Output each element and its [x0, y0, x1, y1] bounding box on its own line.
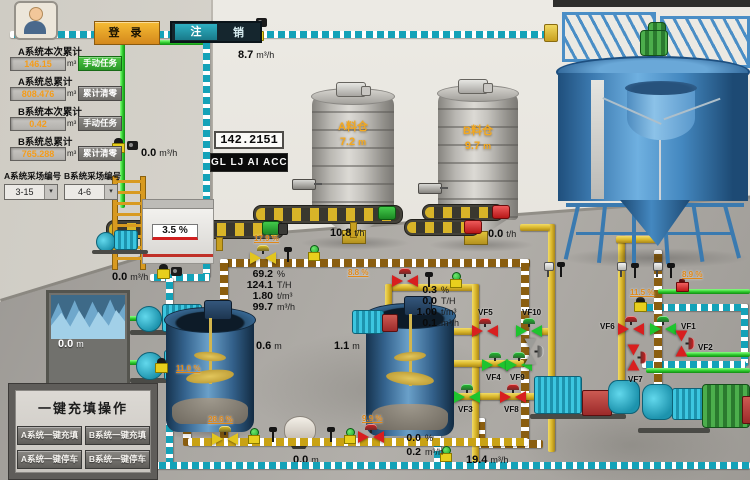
- dosing-pump-icon[interactable]: [96, 232, 116, 252]
- fill-control-valve[interactable]: [212, 426, 238, 445]
- transfer-pump-motor-icon: [352, 310, 384, 334]
- instrument-icon[interactable]: [630, 263, 640, 278]
- feed-valve-opening: 17.9 %: [254, 234, 279, 243]
- density-sensor-icon[interactable]: [248, 428, 260, 444]
- transmitter-icon: [171, 267, 182, 276]
- valve-vf5-label: VF5: [478, 308, 493, 317]
- valve-vf7[interactable]: [628, 345, 647, 371]
- valve-vf6-label: VF6: [600, 322, 615, 331]
- b-system-stop-button[interactable]: B系统一键停车: [85, 450, 150, 469]
- instrument-icon[interactable]: [666, 263, 676, 278]
- valve-position-sensor-icon[interactable]: [634, 297, 647, 312]
- conveyor-b-rate: 0.0t/h: [488, 224, 516, 242]
- teal-line-opening: 11.0 %: [176, 364, 200, 373]
- accum-label-b-total: B系统总累计: [18, 134, 72, 148]
- b-system-fill-button[interactable]: B系统一键充填: [85, 426, 150, 445]
- tank2-valve-opening: 9.9 %: [362, 414, 382, 423]
- mid-valve-opening: 8.8 %: [348, 268, 368, 277]
- underflow-pump-2-motor-icon: [672, 388, 704, 420]
- density-sensor-icon[interactable]: [308, 245, 320, 261]
- scada-filling-station-screen: A料仓 7.2 m B料仓 9.7 m 3.5 % 0.0m: [0, 0, 750, 480]
- conveyor-a1-motor-icon: [378, 206, 396, 220]
- instrument-icon[interactable]: [652, 262, 662, 277]
- valve-aux[interactable]: [525, 339, 544, 365]
- pipe-green-right-3: [646, 368, 750, 373]
- conveyor-leg: [216, 237, 223, 251]
- pump-coupling: [742, 396, 750, 424]
- silo-a-level-sensor-icon[interactable]: [292, 179, 316, 190]
- silo-b: [438, 92, 518, 220]
- valve-vf8-label: VF8: [504, 405, 519, 414]
- silo-a: [312, 95, 394, 219]
- bottom-flow-reading: 19.4m³/h: [466, 450, 508, 468]
- conveyor-b2-motor-icon: [464, 220, 482, 234]
- rake-shaft: [659, 140, 661, 202]
- site-a-label: A系统采场编号: [4, 170, 61, 182]
- slurry-a-readings: 69.2% 124.1T/H 1.80t/m³ 99.7m³/h: [238, 268, 295, 312]
- manual-task-a-button[interactable]: 手动任务: [78, 56, 122, 71]
- valve-vf2[interactable]: [676, 331, 695, 357]
- pipe-teal-top: [10, 31, 548, 38]
- accum-label-a-total: A系统总累计: [18, 74, 72, 88]
- instrument-icon[interactable]: [556, 262, 566, 277]
- logout-button[interactable]: 注 销: [170, 21, 262, 43]
- conveyor-b1-motor-icon: [492, 205, 510, 219]
- mixing-tank-1-agitator-motor-icon: [204, 300, 232, 320]
- valve-vf6[interactable]: [618, 316, 644, 335]
- instrument-icon[interactable]: [616, 262, 626, 277]
- underflow-pump-1-icon[interactable]: [608, 380, 640, 414]
- accum-value-b-total[interactable]: 765.288: [10, 147, 66, 161]
- pipe-green-right-2: [686, 352, 750, 357]
- pressure-instrument-icon[interactable]: [268, 427, 278, 442]
- valve-vf10[interactable]: [516, 318, 542, 337]
- pipe-green-right-1: [658, 289, 750, 294]
- pump-skid: [92, 250, 148, 254]
- avatar: [14, 1, 58, 40]
- site-a-select[interactable]: 3-15▾: [4, 184, 58, 200]
- chevron-down-icon: ▾: [104, 185, 117, 199]
- conveyor-a-rate: 10.8t/h: [330, 223, 364, 241]
- accum-label-a-current: A系统本次累计: [18, 44, 82, 58]
- silo-b-level-sensor-icon[interactable]: [418, 183, 442, 194]
- accum-value-a-total[interactable]: 808.476: [10, 87, 66, 101]
- flocculant-level-display: 3.5 %: [152, 224, 198, 240]
- feed-pump-1-icon[interactable]: [136, 306, 162, 332]
- manual-task-b-button[interactable]: 手动任务: [78, 116, 122, 131]
- accum-unit: m³: [67, 89, 76, 98]
- valve-vf7-label: VF7: [628, 375, 643, 384]
- instrument-icon[interactable]: [543, 262, 553, 277]
- silo-a-label: A料仓 7.2 m: [312, 120, 394, 150]
- site-b-select[interactable]: 4-6▾: [64, 184, 118, 200]
- mixing-tank-2-level: 1.1m: [334, 336, 360, 354]
- transmitter-icon: [127, 141, 138, 150]
- valve-position-sensor-icon[interactable]: [155, 358, 168, 373]
- valve-vf9-label: VF9: [510, 373, 525, 382]
- accum-unit: m³: [67, 149, 76, 158]
- clear-accum-a-button[interactable]: 累计清零: [78, 86, 122, 101]
- accumulator-display: 142.2151: [214, 131, 284, 149]
- red-sensor-icon[interactable]: [676, 279, 689, 292]
- silo-b-label: B料仓 9.7 m: [438, 124, 518, 154]
- valve-vf8[interactable]: [500, 384, 526, 403]
- ceiling-edge: [553, 0, 750, 7]
- top-flow-reading: 8.7m³/h: [238, 45, 274, 63]
- accum-label-b-current: B系统本次累计: [18, 104, 82, 118]
- pipe-elbow: [544, 24, 558, 42]
- silo-a-top-motor-icon: [336, 82, 366, 97]
- underflow-pump-2-icon[interactable]: [642, 384, 674, 420]
- valve-vf10-label: VF10: [522, 308, 541, 317]
- accum-unit: m³: [67, 119, 76, 128]
- flow-sensor-icon[interactable]: [157, 264, 170, 279]
- site-b-label: B系统采场编号: [64, 170, 121, 182]
- pump-skid: [638, 428, 710, 433]
- valve-vf4[interactable]: [482, 352, 508, 371]
- chevron-down-icon: ▾: [44, 185, 57, 199]
- wall-flow-reading: 0.0m³/h: [141, 143, 177, 161]
- valve-vf3[interactable]: [454, 384, 480, 403]
- panel-title: 一键充填操作: [9, 398, 157, 417]
- valve-vf1[interactable]: [650, 316, 676, 335]
- pipe-yellow-siloB-stub: [520, 224, 550, 231]
- clear-accum-b-button[interactable]: 累计清零: [78, 146, 122, 161]
- accum-unit: m³: [67, 59, 76, 68]
- feed-control-valve[interactable]: [250, 245, 276, 264]
- right-lower-opening: 8.9 %: [682, 270, 702, 279]
- pressure-instrument-icon[interactable]: [283, 247, 293, 262]
- return-line-readings: 0.0% 0.2m³/h: [386, 432, 443, 460]
- logout-left: 注: [175, 24, 217, 40]
- silo-b-top-motor-icon: [458, 79, 488, 94]
- tank-out-flow-reading: 0.0m³/h: [112, 267, 148, 285]
- underflow-pump-1-motor-icon: [534, 376, 582, 414]
- valve-vf4-label: VF4: [486, 373, 501, 382]
- conveyor-gearbox-icon: [278, 223, 288, 235]
- logout-right: 销: [217, 24, 260, 40]
- a-system-stop-button[interactable]: A系统一键停车: [17, 450, 82, 469]
- dosing-pump-motor-icon: [114, 230, 138, 250]
- water-tank-level: 0.0m: [58, 334, 84, 352]
- valve-vf3-label: VF3: [458, 405, 473, 414]
- pressure-instrument-icon[interactable]: [326, 427, 336, 442]
- slurry-b-readings: 0.3% 0.0T/H 1.00t/m³ 0.1m³/h: [402, 284, 459, 328]
- right-upper-opening: 11.5 %: [630, 288, 654, 297]
- accum-value-b-current[interactable]: 0.42: [10, 117, 66, 131]
- valve-vf2-label: VF2: [698, 343, 713, 352]
- rake-drive-motor: [640, 30, 668, 56]
- transfer-pump-icon[interactable]: [382, 314, 398, 332]
- valve-vf5[interactable]: [472, 318, 498, 337]
- login-button[interactable]: 登 录: [94, 21, 160, 45]
- status-ticker: GL LJ AI ACC: [210, 153, 288, 172]
- accum-value-a-current[interactable]: 146.15: [10, 57, 66, 71]
- tank2-red-valve[interactable]: [358, 424, 384, 443]
- mixing-tank-1-level: 0.6m: [256, 336, 282, 354]
- fill-valve-opening: 28.6 %: [208, 415, 233, 424]
- density-sensor-icon[interactable]: [344, 428, 356, 444]
- a-system-fill-button[interactable]: A系统一键充填: [17, 426, 82, 445]
